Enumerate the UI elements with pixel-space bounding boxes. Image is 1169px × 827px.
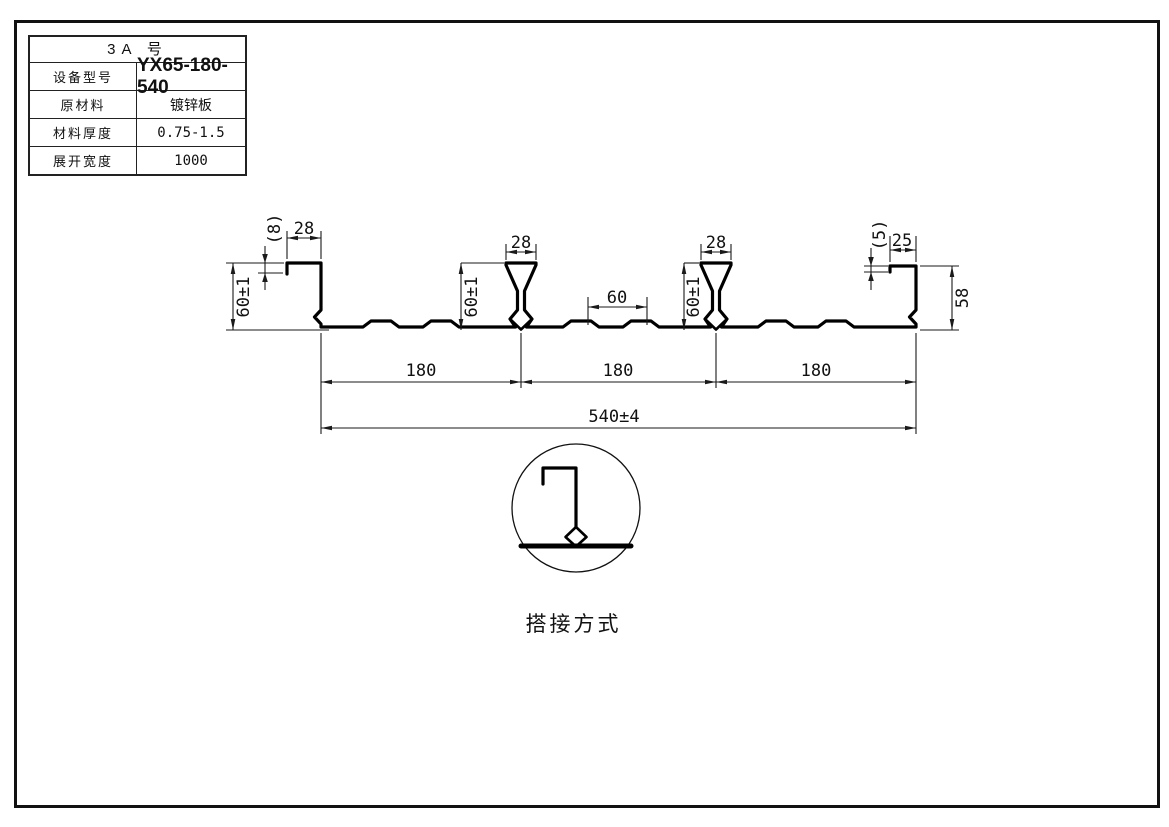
dim-right-lip-drop: (5) <box>870 220 890 251</box>
dim-left-height: 60±1 <box>234 277 254 318</box>
dim-left-lip-drop: (8) <box>265 214 285 245</box>
dim-pitch2: 180 <box>603 361 634 381</box>
detail-upper-sheet <box>543 468 576 527</box>
detail-caption: 搭接方式 <box>491 608 656 638</box>
dim-right-end: (5) 25 58 <box>864 220 973 330</box>
dim-left-lip-width: 28 <box>294 219 314 239</box>
drawing-sheet: 3A 号 设备型号 YX65-180-540 原材料 镀锌板 材料厚度 0.75… <box>0 0 1169 827</box>
dim-rib1-height: 60±1 <box>462 277 482 318</box>
dim-right-lip-width: 25 <box>892 231 912 251</box>
dim-bump-width: 60 <box>607 288 627 308</box>
dim-pitch1: 180 <box>406 361 437 381</box>
dim-rib2-top-width: 28 <box>706 233 726 253</box>
dim-bottom-chains: 180 180 180 540±4 <box>321 333 916 434</box>
dim-rib2-height: 60±1 <box>684 277 704 318</box>
dim-overall-width: 540±4 <box>588 407 639 427</box>
dim-rib1: 28 60±1 <box>461 233 536 330</box>
dim-right-height: 58 <box>953 288 973 308</box>
lap-joint-detail <box>512 444 640 572</box>
deck-profile-outline <box>287 263 916 330</box>
dim-left-end: 60±1 (8) 28 <box>226 214 329 330</box>
dim-pitch3: 180 <box>801 361 832 381</box>
profile-drawing: 60±1 (8) 28 28 60±1 28 60±1 <box>0 0 1169 827</box>
dim-rib1-top-width: 28 <box>511 233 531 253</box>
